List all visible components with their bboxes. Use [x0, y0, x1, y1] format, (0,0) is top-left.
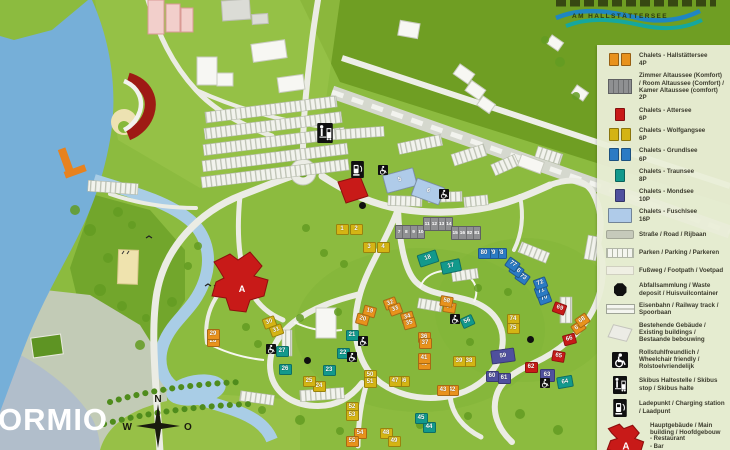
- parking-icon: [604, 248, 636, 258]
- facility-item: - Bar: [650, 444, 725, 450]
- fuschlsee-icon: [604, 208, 636, 223]
- existing-icon: [604, 326, 636, 340]
- hallstaettersee-icon: [604, 53, 636, 66]
- legend-item-capacity: 8P: [639, 176, 725, 183]
- legend-item-label: Eisenbahn / Railway track / Spoorbaan: [639, 302, 725, 317]
- svg-text:O: O: [184, 422, 192, 433]
- mondsee-icon: [604, 189, 636, 202]
- legend-item-attersee: Chalets - Attersee6P: [604, 107, 725, 122]
- legend-item-footpath: Fußweg / Footpath / Voetpad: [604, 264, 725, 277]
- main-building-icon: A: [604, 422, 648, 450]
- map-legend: Chalets - Hallstättersee4PZimmer Altauss…: [597, 45, 730, 450]
- facility-list: - Restaurant- Bar- Wellness (Sauna / Bea…: [650, 436, 725, 450]
- legend-items: Chalets - Hallstättersee4PZimmer Altauss…: [604, 52, 725, 417]
- legend-item-skibus: Skibus Haltestelle / Skibus stop / Skibu…: [604, 376, 725, 394]
- legend-item-label: Rollstuhlfreundlich / Wheelchair friendl…: [639, 349, 725, 371]
- legend-item-charging: Ladepunkt / Charging station / Laadpunt: [604, 399, 725, 417]
- legend-item-capacity: 16P: [639, 216, 725, 223]
- legend-item-traunsee: Chalets - Traunsee8P: [604, 168, 725, 183]
- waste-icon: [604, 283, 636, 296]
- legend-item-label: Chalets - Wolfgangsee: [639, 127, 725, 134]
- legend-item-label: Parken / Parking / Parkeren: [639, 249, 725, 256]
- legend-item-mondsee: Chalets - Mondsee10P: [604, 188, 725, 203]
- resort-watermark: ORMIO: [0, 402, 108, 438]
- legend-item-label: Zimmer Altaussee (Komfort) / Room Altaus…: [639, 72, 725, 101]
- legend-item-label: Chalets - Fuschlsee: [639, 208, 725, 215]
- railway-icon: [604, 304, 636, 314]
- brand-subtitle: AM HALLSTÄTTERSEE: [572, 13, 668, 20]
- legend-item-road: Straße / Road / Rijbaan: [604, 228, 725, 241]
- legend-item-label: Ladepunkt / Charging station / Laadpunt: [639, 400, 725, 415]
- traunsee-icon: [604, 169, 636, 182]
- sports-field: [31, 334, 63, 358]
- room-icon: [604, 79, 636, 94]
- legend-item-capacity: 6P: [639, 115, 725, 122]
- wheelchair-icon: [604, 352, 636, 368]
- svg-text:W: W: [123, 422, 133, 433]
- legend-main-building: A Hauptgebäude / Main building / Hoofdge…: [604, 422, 725, 450]
- legend-item-existing: Bestehende Gebäude / Existing buildings …: [604, 322, 725, 344]
- legend-item-railway: Eisenbahn / Railway track / Spoorbaan: [604, 302, 725, 317]
- legend-item-label: Bestehende Gebäude / Existing buildings …: [639, 322, 725, 344]
- legend-item-wolfgangsee: Chalets - Wolfgangsee6P: [604, 127, 725, 142]
- road-icon: [604, 230, 636, 239]
- legend-item-label: Chalets - Grundlsee: [639, 147, 725, 154]
- svg-text:N: N: [154, 394, 161, 405]
- legend-item-wheelchair: Rollstuhlfreundlich / Wheelchair friendl…: [604, 349, 725, 371]
- legend-item-label: Skibus Haltestelle / Skibus stop / Skibu…: [639, 377, 725, 392]
- facility-item: - Restaurant: [650, 436, 725, 443]
- legend-item-waste: Abfallsammlung / Waste deposit / Huisvui…: [604, 282, 725, 297]
- svg-text:A: A: [239, 284, 246, 294]
- legend-item-fuschlsee: Chalets - Fuschlsee16P: [604, 208, 725, 223]
- legend-item-label: Chalets - Mondsee: [639, 188, 725, 195]
- wolfgangsee-icon: [604, 128, 636, 141]
- legend-item-capacity: 10P: [639, 196, 725, 203]
- legend-item-label: Abfallsammlung / Waste deposit / Huisvui…: [639, 282, 725, 297]
- resort-map: A N W O 12345617181920212223242526272829…: [0, 0, 730, 450]
- legend-item-label: Chalets - Traunsee: [639, 168, 725, 175]
- skibus-icon: [604, 376, 636, 394]
- footpath-icon: [604, 266, 636, 275]
- main-building-title: Hauptgebäude / Main building / Hoofdgebo…: [650, 422, 725, 437]
- charging-icon: [604, 399, 636, 417]
- legend-item-label: Chalets - Attersee: [639, 107, 725, 114]
- legend-item-room: Zimmer Altaussee (Komfort) / Room Altaus…: [604, 72, 725, 101]
- legend-item-label: Straße / Road / Rijbaan: [639, 231, 725, 238]
- attersee-icon: [604, 108, 636, 121]
- grundlsee-icon: [604, 148, 636, 161]
- legend-item-label: Fußweg / Footpath / Voetpad: [639, 267, 725, 274]
- legend-item-capacity: 6P: [639, 135, 725, 142]
- legend-item-grundlsee: Chalets - Grundlsee6P: [604, 147, 725, 162]
- playground: [117, 250, 138, 285]
- legend-item-capacity: 6P: [639, 156, 725, 163]
- legend-item-parking: Parken / Parking / Parkeren: [604, 246, 725, 259]
- legend-item-hallstaettersee: Chalets - Hallstättersee4P: [604, 52, 725, 67]
- svg-text:A: A: [622, 441, 629, 450]
- legend-item-label: Chalets - Hallstättersee: [639, 52, 725, 59]
- legend-item-capacity: 4P: [639, 60, 725, 67]
